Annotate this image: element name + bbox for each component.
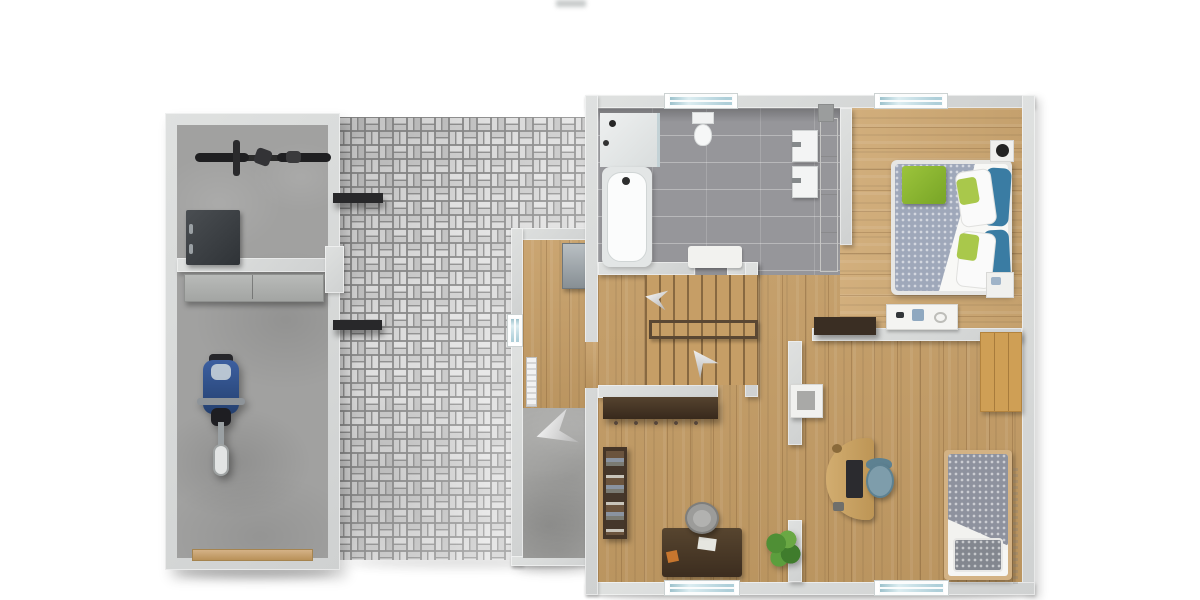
desk-item [832,444,842,453]
bath-mat [688,246,742,268]
bathroom-tall-cabinet [820,118,838,272]
office-chair-seat [866,464,894,498]
desk-paper [697,537,716,551]
watermark [1013,468,1018,584]
sink-faucet [792,178,801,183]
sideboard [603,397,718,419]
toilet-bowl [694,124,712,146]
nightstand-items [991,277,1001,285]
green-cushion [956,176,980,205]
bedroom-window [874,93,948,109]
shower-tap [603,140,609,146]
toilet-tank [692,112,714,124]
nightstand [986,272,1014,298]
entry-west-wall-upper [511,228,523,316]
bookshelf-books [606,451,624,535]
garage-shelf-seam [252,275,253,299]
laptop [846,460,863,498]
awning-shelf [333,320,382,330]
green-cushion [956,233,979,262]
garage-shelf [184,274,324,302]
shower-drain [609,120,616,127]
bathtub-faucet [622,177,630,185]
motorcycle [197,352,245,478]
motorcycle-handlebars [197,398,245,405]
bathroom-window [664,93,738,109]
house-bottom-wall [585,582,1035,595]
study-window [664,580,740,596]
floating-shelf-dark [814,317,876,335]
study-chair-seat [693,510,711,527]
stair-railing [649,320,758,339]
wardrobe-panel [980,332,1022,412]
sideboard-hooks [608,420,712,426]
table-lamp [996,144,1009,157]
desk-item-orange [666,550,679,563]
garage-floor [177,125,328,558]
desk-item [833,502,844,511]
awning-shelf [333,193,383,203]
chimney-smudge [556,0,586,7]
green-throw [902,166,946,204]
sink-faucet [792,142,801,147]
jewelry-item [912,309,924,321]
bathtub-basin [607,172,647,262]
service-shaft [818,104,834,122]
floor-plan [0,0,1200,600]
second-bedroom-window [874,580,949,596]
jewelry-item [896,312,904,318]
steel-wardrobe [562,243,586,289]
house-right-wall [1022,95,1035,595]
garage-door [192,549,313,561]
garage-wall-pier [325,246,344,293]
radiator [526,357,537,407]
entry-west-wall-lower [511,345,523,566]
workbench [186,210,240,265]
entry-window [507,314,523,347]
bicycle-front-wheel [195,153,249,162]
jewelry-ring [934,312,947,323]
paisley-pillow [953,538,1003,572]
house-top-wall [585,95,1035,108]
workbench-handle [189,244,193,254]
motorcycle-windshield [211,364,231,380]
motorcycle-front-wheel [213,444,229,476]
bedroom-west-wall [840,108,852,245]
office-chair [864,456,896,502]
potted-plant [764,529,802,569]
workbench-handle [189,224,193,234]
bicycle-saddle [286,151,301,163]
corridor-doorway [585,342,598,388]
wall-cabinet-inset [797,391,815,410]
bicycle-handlebar [233,140,240,176]
